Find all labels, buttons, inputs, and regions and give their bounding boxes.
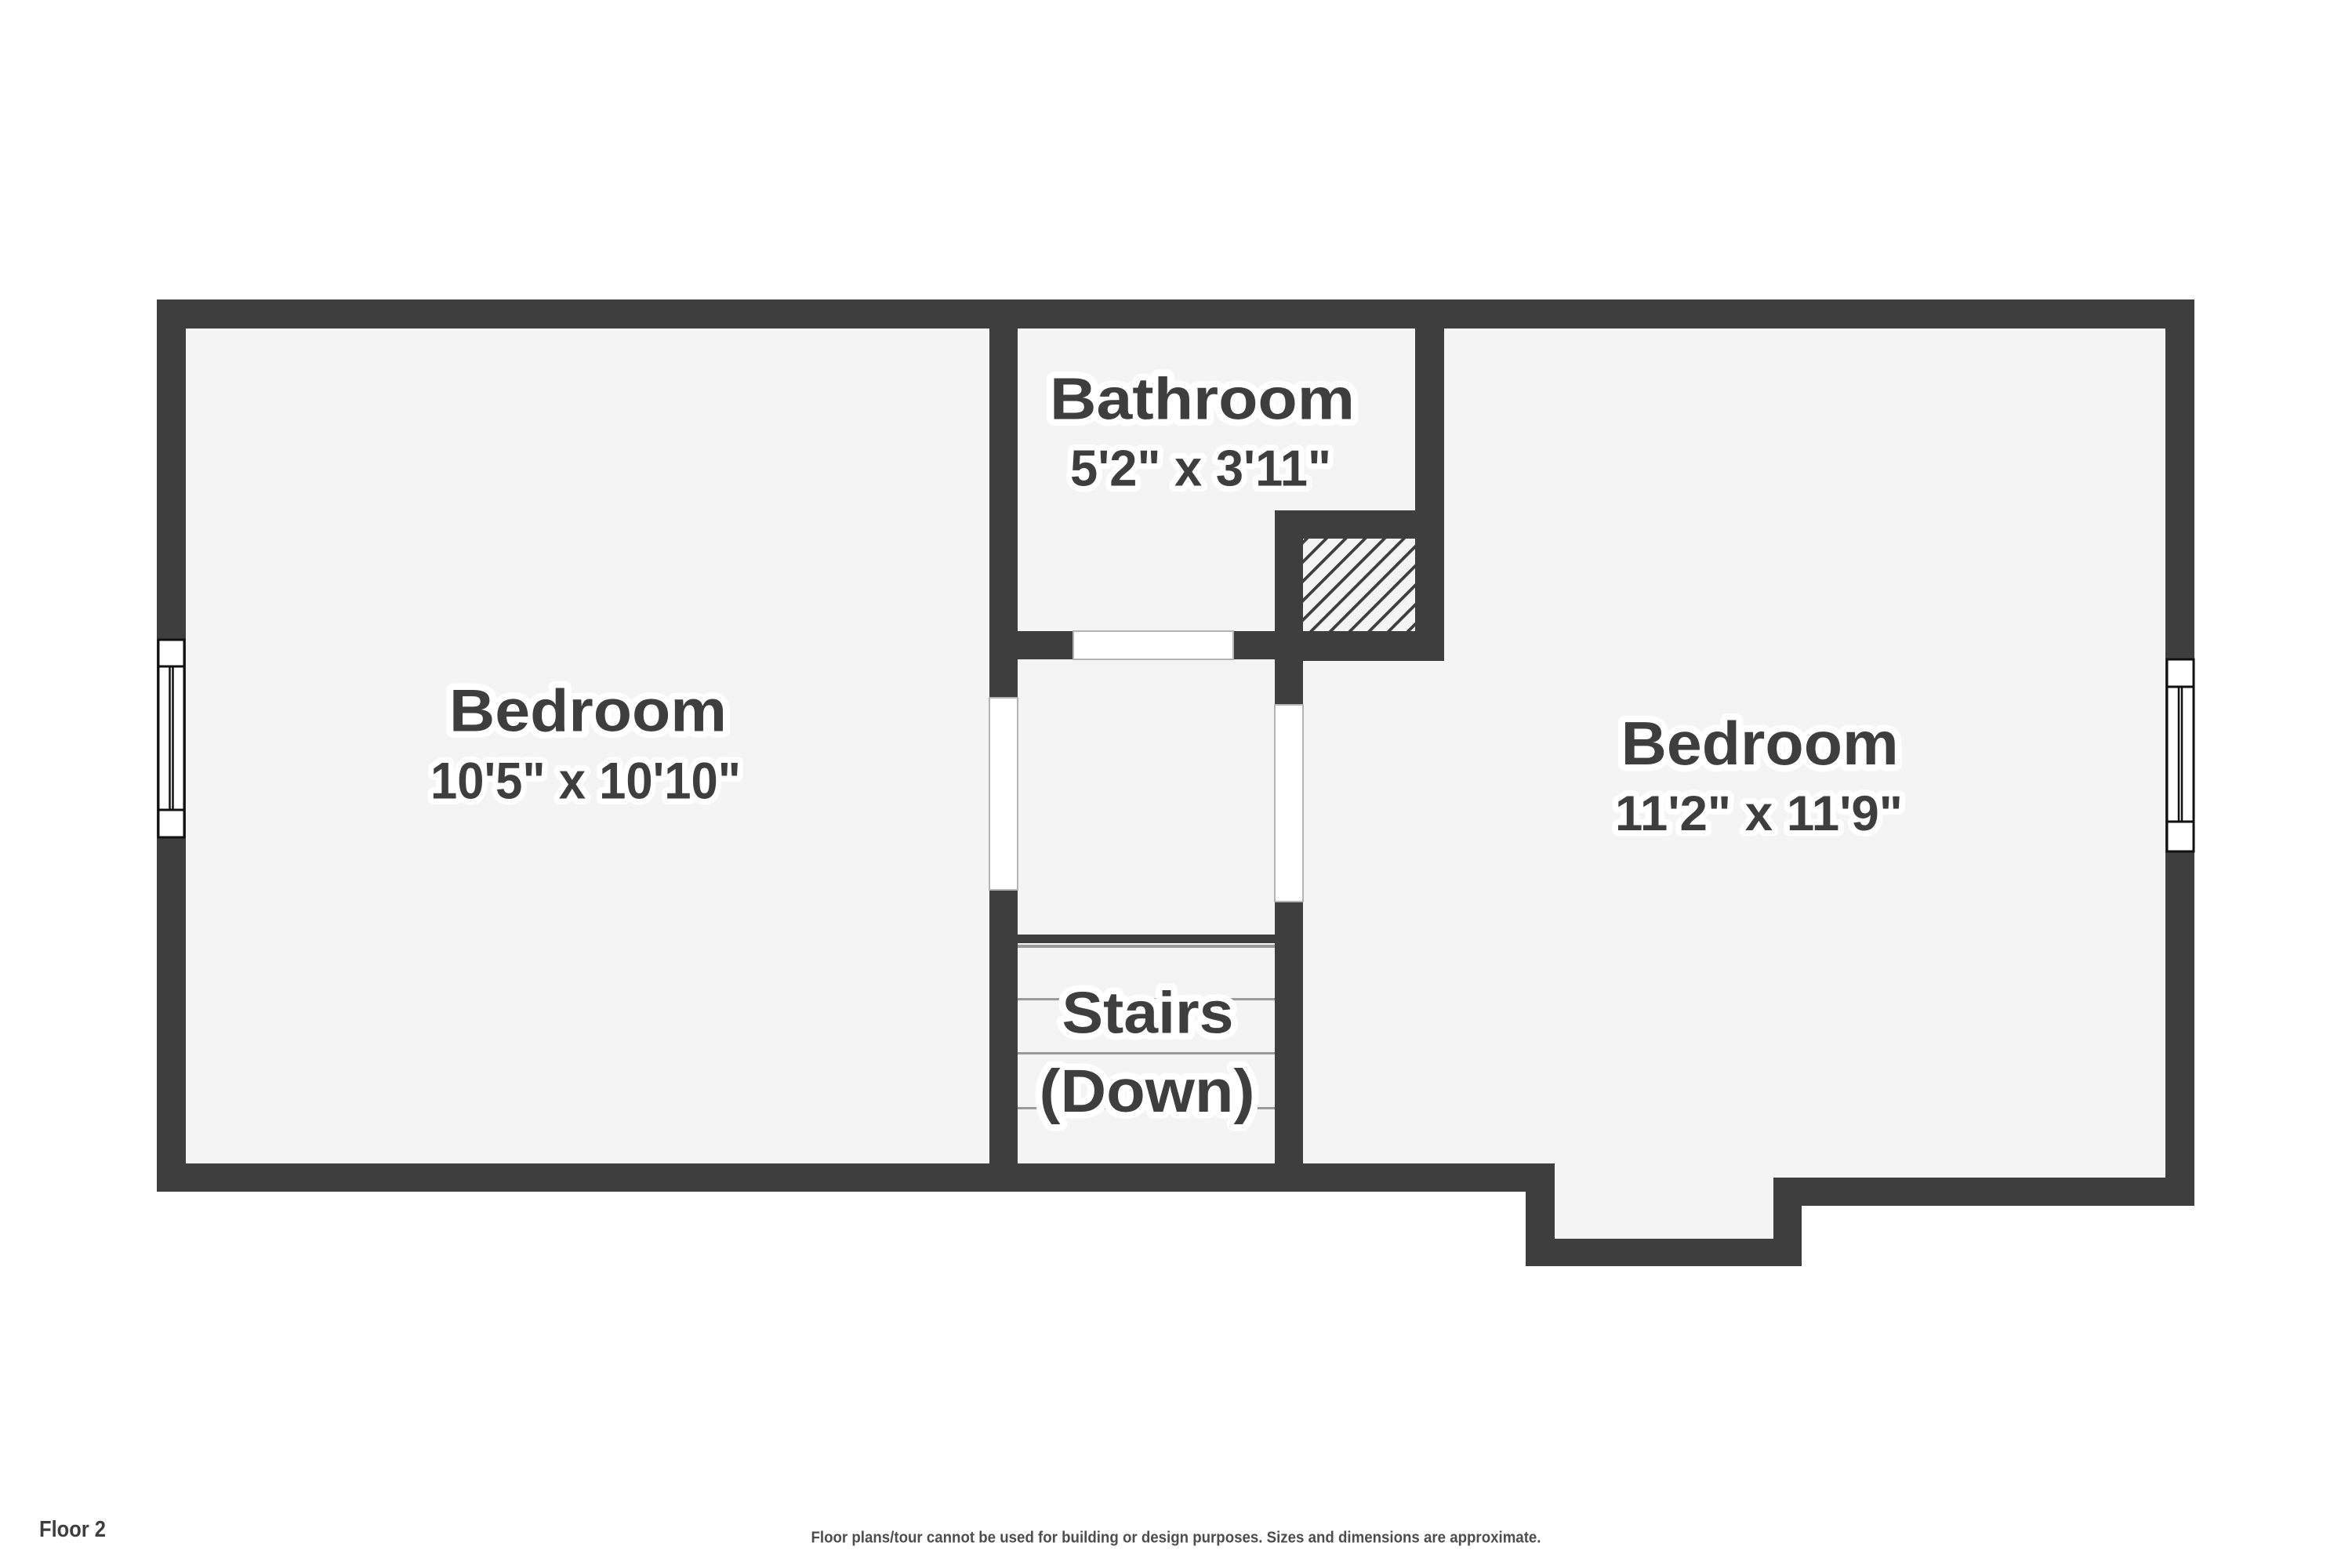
svg-text:Floor 2: Floor 2 xyxy=(39,1517,106,1542)
svg-text:11'2" x 11'9": 11'2" x 11'9" xyxy=(1615,786,1903,841)
svg-text:Bedroom: Bedroom xyxy=(1621,710,1899,778)
svg-text:Stairs: Stairs xyxy=(1062,980,1234,1046)
svg-text:Bathroom: Bathroom xyxy=(1050,366,1355,432)
svg-text:Bedroom: Bedroom xyxy=(449,678,727,745)
svg-text:5'2" x 3'11": 5'2" x 3'11" xyxy=(1070,440,1331,497)
svg-text:(Down): (Down) xyxy=(1040,1058,1255,1125)
svg-text:10'5" x 10'10": 10'5" x 10'10" xyxy=(430,753,741,810)
svg-text:Floor plans/tour cannot be use: Floor plans/tour cannot be used for buil… xyxy=(811,1529,1541,1547)
